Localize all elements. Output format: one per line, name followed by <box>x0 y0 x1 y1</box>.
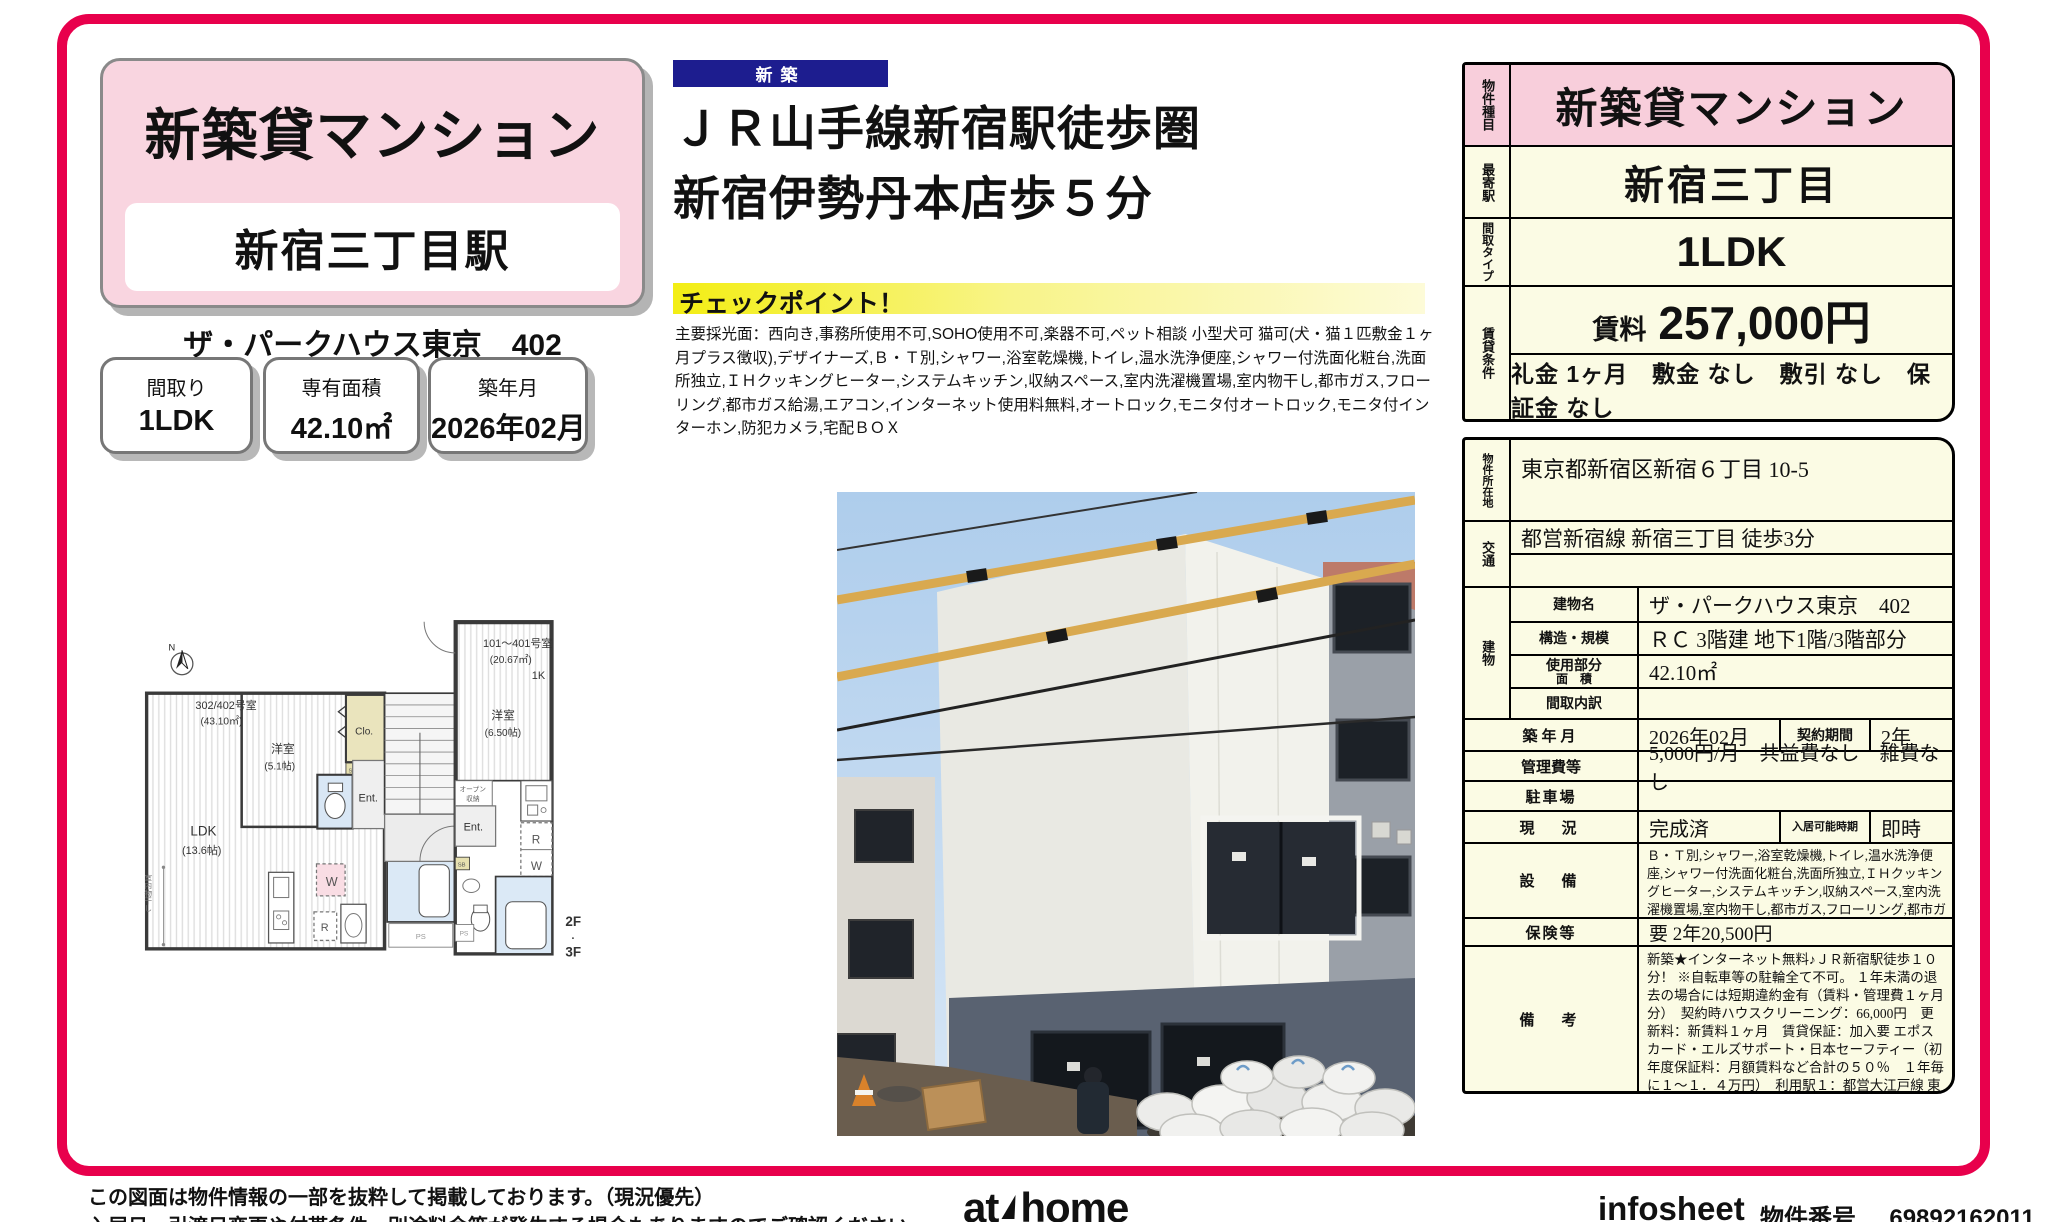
floorplan-image: N 302/402号室 (43.10㎡) 洋室 (5.1帖) LDK (13.6… <box>138 615 643 985</box>
building-name-row: 建物名 ザ・パークハウス東京 402 <box>1511 588 1952 621</box>
movein-value: 即時 <box>1871 812 1952 842</box>
spec-type-label: 物件種目 <box>1480 79 1494 131</box>
property-number-label: 物件番号 <box>1760 1205 1856 1222</box>
spec-table: 物件種目 新築貸マンション 最寄駅 新宿三丁目 間取タイプ 1LDK 賃貸条件 … <box>1462 62 1955 422</box>
svg-text:2F: 2F <box>565 914 581 929</box>
spec-terms-cell: 礼金 1ヶ月 敷金 なし 敷引 なし 保証金 なし <box>1511 355 1952 422</box>
property-title-box: 新築貸マンション 新宿三丁目駅 <box>100 58 645 308</box>
station-name-box: 新宿三丁目駅 <box>125 203 620 291</box>
detail-row-fees: 管理費等 5,000円/月 共益費なし 雑費なし <box>1465 750 1952 780</box>
spec-type-value: 新築貸マンション <box>1511 65 1952 145</box>
svg-text:(20.67㎡): (20.67㎡) <box>490 654 532 666</box>
fact-box-built: 築年月 2026年02月 <box>428 357 588 454</box>
insurance-label: 保険等 <box>1465 919 1639 945</box>
svg-text:W: W <box>326 875 338 889</box>
fees-value: 5,000円/月 共益費なし 雑費なし <box>1639 752 1952 780</box>
notes-value: 新築★インターネット無料♪ＪＲ新宿駅徒歩１０分！ ※自転車等の駐輪全て不可。 １… <box>1639 947 1952 1091</box>
svg-text:(5.1帖): (5.1帖) <box>264 760 295 773</box>
fact-box-layout: 間取り 1LDK <box>100 357 253 454</box>
fact-label: 専有面積 <box>266 372 417 401</box>
detail-row-notes: 備 考 新築★インターネット無料♪ＪＲ新宿駅徒歩１０分！ ※自転車等の駐輪全て不… <box>1465 945 1952 1091</box>
photo-main-building <box>937 534 1415 1136</box>
equipment-value: Ｂ・Ｔ別,シャワー,浴室乾燥機,トイレ,温水洗浄便座,シャワー付洗面化粧台,洗面… <box>1639 844 1952 917</box>
athome-logo-mark-icon <box>1002 1195 1020 1219</box>
area-label-line1: 使用部分 <box>1546 657 1602 673</box>
catch-copy: ＪＲ山手線新宿駅徒歩圏 新宿伊勢丹本店歩５分 <box>673 94 1313 233</box>
fact-box-area: 専有面積 42.10㎡ <box>263 357 420 454</box>
fact-label: 築年月 <box>431 372 585 401</box>
insurance-value: 要 2年20,500円 <box>1639 919 1952 945</box>
spec-row-terms: 賃貸条件 賃料 257,000円 礼金 1ヶ月 敷金 なし 敷引 なし 保証金 … <box>1465 285 1952 419</box>
layout-detail-label: 間取内訳 <box>1511 689 1639 718</box>
athome-logo-home: home <box>1020 1184 1128 1222</box>
fact-value: 2026年02月 <box>431 405 585 447</box>
parking-label: 駐車場 <box>1465 782 1639 810</box>
parking-value <box>1639 782 1952 810</box>
spec-layout-label: 間取タイプ <box>1480 222 1493 282</box>
spec-layout-value: 1LDK <box>1511 219 1952 285</box>
fees-label: 管理費等 <box>1465 752 1639 780</box>
svg-text:・: ・ <box>569 933 577 943</box>
svg-text:Ent.: Ent. <box>464 821 483 833</box>
svg-text:Clo.: Clo. <box>355 726 373 737</box>
access-value: 都営新宿線 新宿三丁目 徒歩3分 <box>1511 522 1952 555</box>
spec-row-station: 最寄駅 新宿三丁目 <box>1465 145 1952 217</box>
built-label: 築年月 <box>1465 720 1639 750</box>
building-photo <box>837 492 1415 1136</box>
svg-text:室内物干し: 室内物干し <box>144 873 153 912</box>
disclaimer-line2: 入居日・引渡日変更や付帯条件、別途料金等が発生する場合もありますのでご確認くださ… <box>88 1213 1008 1222</box>
spec-row-layout: 間取タイプ 1LDK <box>1465 217 1952 285</box>
compass-north-icon: N <box>169 642 193 674</box>
address-label: 物件所在地 <box>1481 453 1493 508</box>
svg-text:(6.50帖): (6.50帖) <box>485 726 521 739</box>
fact-label: 間取り <box>103 372 250 401</box>
checkpoint-banner: チェックポイント！ <box>673 283 1425 314</box>
infosheet-label: infosheet <box>1598 1190 1745 1222</box>
checkpoint-body: 主要採光面：西向き,事務所使用不可,SOHO使用不可,楽器不可,ペット相談 小型… <box>675 323 1435 441</box>
fact-value: 1LDK <box>103 405 250 438</box>
rent-value: 257,000円 <box>1658 287 1870 353</box>
structure-row: 構造・規模 ＲＣ 3階建 地下1階/3階部分 <box>1511 621 1952 654</box>
fact-value: 42.10㎡ <box>266 405 417 447</box>
layout-detail-value <box>1639 689 1952 718</box>
building-label: 建物 <box>1480 640 1494 666</box>
svg-text:101～401号室: 101～401号室 <box>483 636 552 650</box>
athome-logo: at home <box>963 1184 1128 1222</box>
athome-logo-at: at <box>963 1184 998 1222</box>
spec-rent-cell: 賃料 257,000円 <box>1511 287 1952 355</box>
detail-table: 物件所在地 東京都新宿区新宿６丁目 10-5 交通 都営新宿線 新宿三丁目 徒歩… <box>1462 437 1955 1094</box>
svg-text:W: W <box>531 860 543 873</box>
catch-copy-line2: 新宿伊勢丹本店歩５分 <box>673 164 1313 234</box>
area-value: 42.10㎡ <box>1639 656 1952 687</box>
svg-text:R: R <box>321 922 329 934</box>
area-row: 使用部分 面 積 42.10㎡ <box>1511 654 1952 687</box>
structure-value: ＲＣ 3階建 地下1階/3階部分 <box>1639 623 1952 654</box>
detail-row-parking: 駐車場 <box>1465 780 1952 810</box>
status-value: 完成済 <box>1639 812 1779 842</box>
disclaimer-line1: この図面は物件情報の一部を抜粋して掲載しております。（現況優先） <box>88 1184 1008 1213</box>
access-label: 交通 <box>1480 541 1494 567</box>
infosheet-page: 新築貸マンション 新宿三丁目駅 ザ・パークハウス東京 402 間取り 1LDK … <box>0 0 2056 1222</box>
property-number: 物件番号 69892162011 <box>1760 1198 2035 1222</box>
access-empty <box>1511 555 1952 586</box>
svg-text:1K: 1K <box>532 670 546 682</box>
catch-copy-line1: ＪＲ山手線新宿駅徒歩圏 <box>673 94 1313 164</box>
svg-text:(43.10㎡): (43.10㎡) <box>200 715 242 727</box>
svg-text:N: N <box>169 642 176 652</box>
new-build-badge: 新築 <box>673 60 888 87</box>
building-name-label: 建物名 <box>1511 588 1639 621</box>
property-number-value: 69892162011 <box>1889 1205 2035 1222</box>
detail-row-building: 建物 建物名 ザ・パークハウス東京 402 構造・規模 ＲＣ 3階建 地下1階/… <box>1465 586 1952 718</box>
svg-text:LDK: LDK <box>190 823 216 838</box>
svg-text:302/402号室: 302/402号室 <box>195 698 256 712</box>
spec-station-label: 最寄駅 <box>1480 163 1494 202</box>
terms-value: 礼金 1ヶ月 敷金 なし 敷引 なし 保証金 なし <box>1511 355 1952 422</box>
layout-detail-row: 間取内訳 <box>1511 687 1952 718</box>
svg-text:3F: 3F <box>565 944 581 959</box>
property-type-title: 新築貸マンション <box>103 91 642 172</box>
svg-text:(13.6帖): (13.6帖) <box>182 844 221 857</box>
svg-text:Ent.: Ent. <box>359 793 378 805</box>
movein-label: 入居可能時期 <box>1779 812 1871 842</box>
building-name-value: ザ・パークハウス東京 402 <box>1639 588 1952 621</box>
detail-row-address: 物件所在地 東京都新宿区新宿６丁目 10-5 <box>1465 440 1952 520</box>
svg-text:オープン: オープン <box>459 786 486 794</box>
address-value: 東京都新宿区新宿６丁目 10-5 <box>1511 440 1952 520</box>
spec-row-type: 物件種目 新築貸マンション <box>1465 65 1952 145</box>
status-label: 現 況 <box>1465 812 1639 842</box>
spec-terms-label: 賃貸条件 <box>1480 327 1494 379</box>
svg-text:SB: SB <box>458 862 466 868</box>
detail-row-insurance: 保険等 要 2年20,500円 <box>1465 917 1952 945</box>
notes-label: 備 考 <box>1465 947 1639 1091</box>
structure-label: 構造・規模 <box>1511 623 1639 654</box>
svg-text:PS: PS <box>459 930 468 937</box>
spec-station-value: 新宿三丁目 <box>1511 147 1952 217</box>
svg-text:洋室: 洋室 <box>271 742 295 756</box>
footer-disclaimer: この図面は物件情報の一部を抜粋して掲載しております。（現況優先） 入居日・引渡日… <box>88 1184 1008 1222</box>
svg-text:収納: 収納 <box>466 794 480 803</box>
detail-row-access: 交通 都営新宿線 新宿三丁目 徒歩3分 <box>1465 520 1952 586</box>
svg-text:R: R <box>532 834 541 847</box>
rent-label: 賃料 <box>1592 308 1646 347</box>
detail-row-equipment: 設 備 Ｂ・Ｔ別,シャワー,浴室乾燥機,トイレ,温水洗浄便座,シャワー付洗面化粧… <box>1465 842 1952 917</box>
equipment-label: 設 備 <box>1465 844 1639 917</box>
area-label-line2: 面 積 <box>1556 673 1592 687</box>
floorplan-stairs <box>385 693 456 861</box>
svg-text:洋室: 洋室 <box>491 708 515 722</box>
detail-row-status: 現 況 完成済 入居可能時期 即時 <box>1465 810 1952 842</box>
svg-text:PS: PS <box>416 932 426 941</box>
